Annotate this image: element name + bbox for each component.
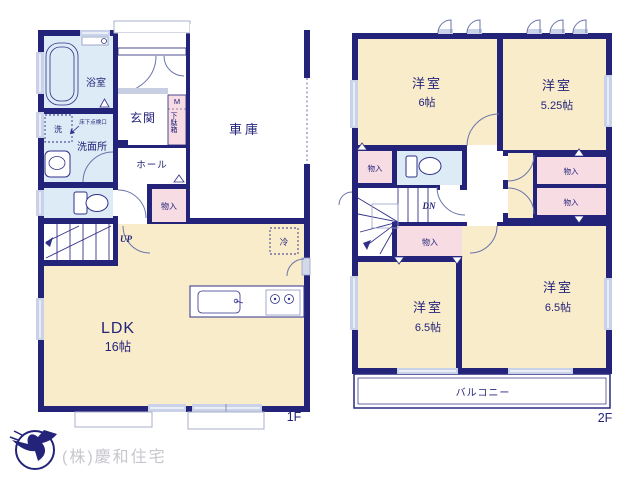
room-2f-nw xyxy=(358,39,497,145)
room-garage xyxy=(190,24,304,218)
room-label-2f-se: 洋室 xyxy=(543,280,573,295)
toilet-fixture-1f xyxy=(74,192,108,214)
entrance-porch xyxy=(114,21,190,33)
company-name: (株)慶和住宅 xyxy=(62,448,167,466)
floor-label-1f: 1F xyxy=(287,410,302,424)
company-logo-bird-icon xyxy=(10,430,57,469)
label-shoebox: 下駄箱 xyxy=(170,112,178,134)
label-closet-2f-left: 物入 xyxy=(368,163,383,173)
room-label-entrance: 玄関 xyxy=(130,110,156,125)
washbasin xyxy=(45,151,70,177)
room-2f-se xyxy=(462,226,606,368)
label-fridge: 冷 xyxy=(280,237,289,247)
entrance-step-edge xyxy=(118,88,168,94)
hall-2f xyxy=(467,151,503,222)
room-label-hall: ホール xyxy=(136,160,168,171)
room-label-2f-se-size: 6.5帖 xyxy=(545,301,571,314)
label-washer: 洗 xyxy=(54,124,62,134)
floorplan-page: 浴室 洗面所 洗 床下点検口 玄関 M 下駄箱 ホール 物入 車庫 冷 LDK … xyxy=(0,0,640,480)
exterior-step xyxy=(188,412,264,429)
room-label-2f-sw: 洋室 xyxy=(413,300,443,315)
floorplan-drawing: 浴室 洗面所 洗 床下点検口 玄関 M 下駄箱 ホール 物入 車庫 冷 LDK … xyxy=(0,0,640,480)
room-2f-sw xyxy=(358,262,456,368)
stove xyxy=(266,290,300,315)
company-footer: (株)慶和住宅 xyxy=(10,430,167,469)
room-label-2f-ne: 洋室 xyxy=(542,78,572,93)
room-label-2f-nw-size: 6帖 xyxy=(418,96,435,109)
room-label-bathroom: 浴室 xyxy=(86,76,106,89)
floor-label-2f: 2F xyxy=(598,411,613,425)
room-label-ldk: LDK xyxy=(101,320,135,337)
room-label-washroom: 洗面所 xyxy=(77,141,107,153)
room-bathroom xyxy=(44,36,113,108)
room-label-ldk-size: 16帖 xyxy=(105,339,131,354)
room-label-closet-1f: 物入 xyxy=(161,201,177,211)
room-label-garage: 車庫 xyxy=(229,122,261,137)
back-door xyxy=(302,258,310,275)
kitchen-counter xyxy=(190,286,304,317)
floor-plan-2f: 洋室 6帖 洋室 5.25帖 物入 物入 物入 物入 DN 洋室 6.5帖 洋室… xyxy=(339,20,613,425)
label-underfloor-hatch: 床下点検口 xyxy=(79,118,107,126)
room-label-2f-nw: 洋室 xyxy=(412,76,442,91)
label-balcony: バルコニー xyxy=(456,387,511,399)
room-label-2f-ne-size: 5.25帖 xyxy=(541,99,573,112)
front-door xyxy=(118,48,186,55)
label-shoebox-m: M xyxy=(174,97,180,106)
label-stairs-up: UP xyxy=(120,234,132,244)
room-2f-ne xyxy=(503,39,606,150)
label-closet-2f-right-bottom: 物入 xyxy=(564,197,579,207)
exterior-step xyxy=(75,412,152,427)
floor-plan-1f: 浴室 洗面所 洗 床下点検口 玄関 M 下駄箱 ホール 物入 車庫 冷 LDK … xyxy=(36,21,310,429)
label-stairs-dn: DN xyxy=(422,201,436,211)
room-label-2f-sw-size: 6.5帖 xyxy=(415,321,441,334)
label-closet-2f-right-top: 物入 xyxy=(564,166,579,176)
label-closet-2f-south: 物入 xyxy=(422,237,438,247)
